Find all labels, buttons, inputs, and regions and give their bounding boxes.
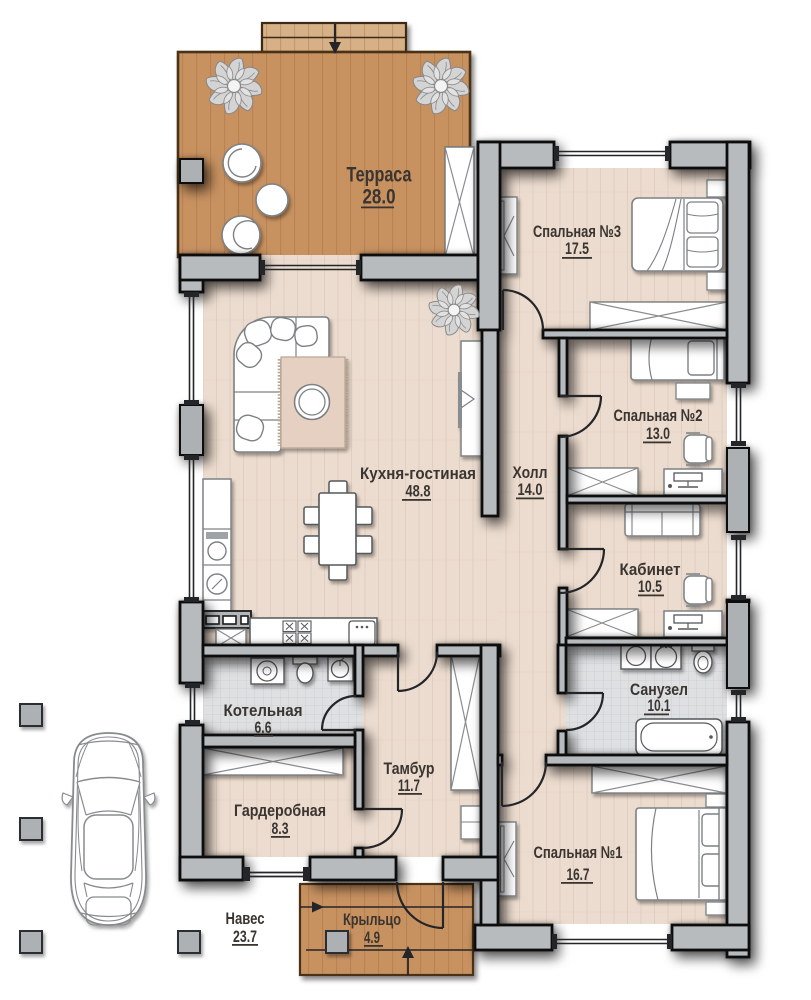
svg-text:Терраса: Терраса bbox=[347, 164, 412, 187]
svg-text:14.0: 14.0 bbox=[518, 480, 543, 499]
svg-text:48.8: 48.8 bbox=[406, 482, 431, 501]
svg-text:16.7: 16.7 bbox=[567, 865, 590, 884]
svg-text:11.7: 11.7 bbox=[398, 776, 420, 795]
svg-text:8.3: 8.3 bbox=[272, 819, 289, 838]
svg-text:17.5: 17.5 bbox=[565, 239, 589, 258]
svg-text:6.6: 6.6 bbox=[255, 718, 272, 737]
svg-text:Гардеробная: Гардеробная bbox=[234, 801, 326, 820]
svg-text:10.1: 10.1 bbox=[648, 696, 671, 715]
svg-text:Спальная №2: Спальная №2 bbox=[614, 406, 703, 425]
svg-text:28.0: 28.0 bbox=[363, 186, 396, 209]
svg-text:Спальная №1: Спальная №1 bbox=[534, 843, 623, 862]
svg-text:10.5: 10.5 bbox=[638, 577, 662, 596]
svg-text:Кухня-гостиная: Кухня-гостиная bbox=[360, 464, 476, 483]
svg-text:Крыльцо: Крыльцо bbox=[343, 910, 401, 929]
svg-text:Навес: Навес bbox=[226, 909, 265, 928]
svg-text:4.9: 4.9 bbox=[364, 928, 380, 947]
svg-text:23.7: 23.7 bbox=[233, 927, 257, 946]
svg-text:13.0: 13.0 bbox=[646, 424, 670, 443]
